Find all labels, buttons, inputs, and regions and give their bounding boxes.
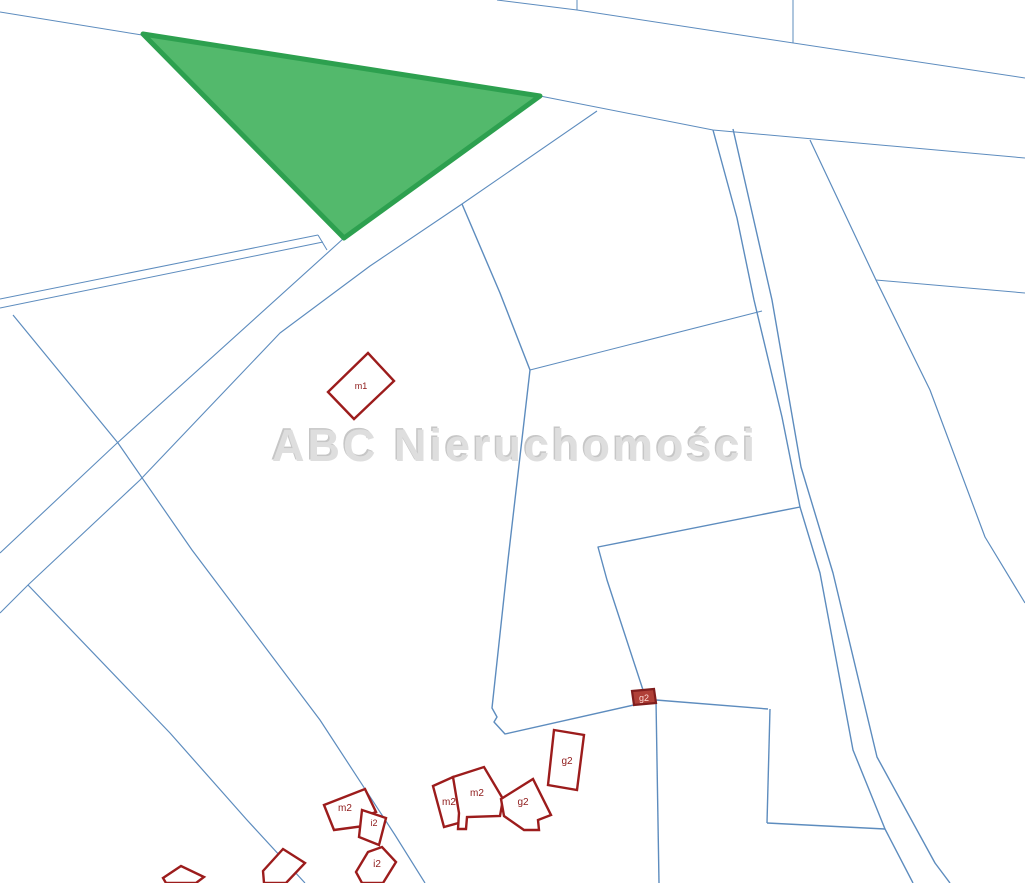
watermark-abc-nieruchomosci: ABC Nieruchomości (272, 420, 758, 471)
parcel-boundary-junction-east-line (656, 700, 768, 709)
parcel-boundary-parcel-top-edge (530, 311, 762, 370)
building-outline (163, 866, 204, 883)
highlighted-parcel[interactable] (143, 34, 540, 238)
cadastral-map-canvas: ABC Nieruchomości ABC Nieruchomości m1m2… (0, 0, 1025, 883)
cadastral-map-view: ABC Nieruchomości ABC Nieruchomości m1m2… (0, 0, 1025, 883)
building-label-m1: m1 (355, 381, 368, 391)
parcel-boundary-right-horizontal (876, 280, 1025, 293)
parcel-boundary-junction-south-line (656, 700, 659, 883)
parcel-boundary-southwest-diagonal (28, 585, 305, 883)
building-label-g2: g2 (561, 756, 573, 767)
parcel-boundary-road-upper-edge (497, 0, 1025, 78)
building-usage-marker: g2 (632, 689, 656, 705)
parcel-boundary-east-parcel-bottom (767, 823, 885, 829)
building-label-i2: i2 (370, 818, 377, 828)
building-label-m2: m2 (442, 797, 456, 808)
parcel-boundary-lane-edge-b (0, 242, 323, 308)
parcel-boundary-east-parcel-side (767, 709, 770, 823)
building-label-m2: m2 (470, 788, 484, 799)
parcel-boundary-lane-edge-a (0, 235, 318, 299)
parcel-boundary-path-right-edge (733, 129, 950, 883)
building-label-m2: m2 (338, 803, 352, 814)
building-label-g2: g2 (517, 797, 529, 808)
marker-label: g2 (639, 693, 649, 703)
building-label-i2: i2 (373, 859, 381, 870)
parcel-boundary-right-diagonal (810, 140, 1025, 603)
parcel-boundary-parcel-bottom-edge (598, 507, 800, 700)
building-outline (263, 849, 305, 883)
